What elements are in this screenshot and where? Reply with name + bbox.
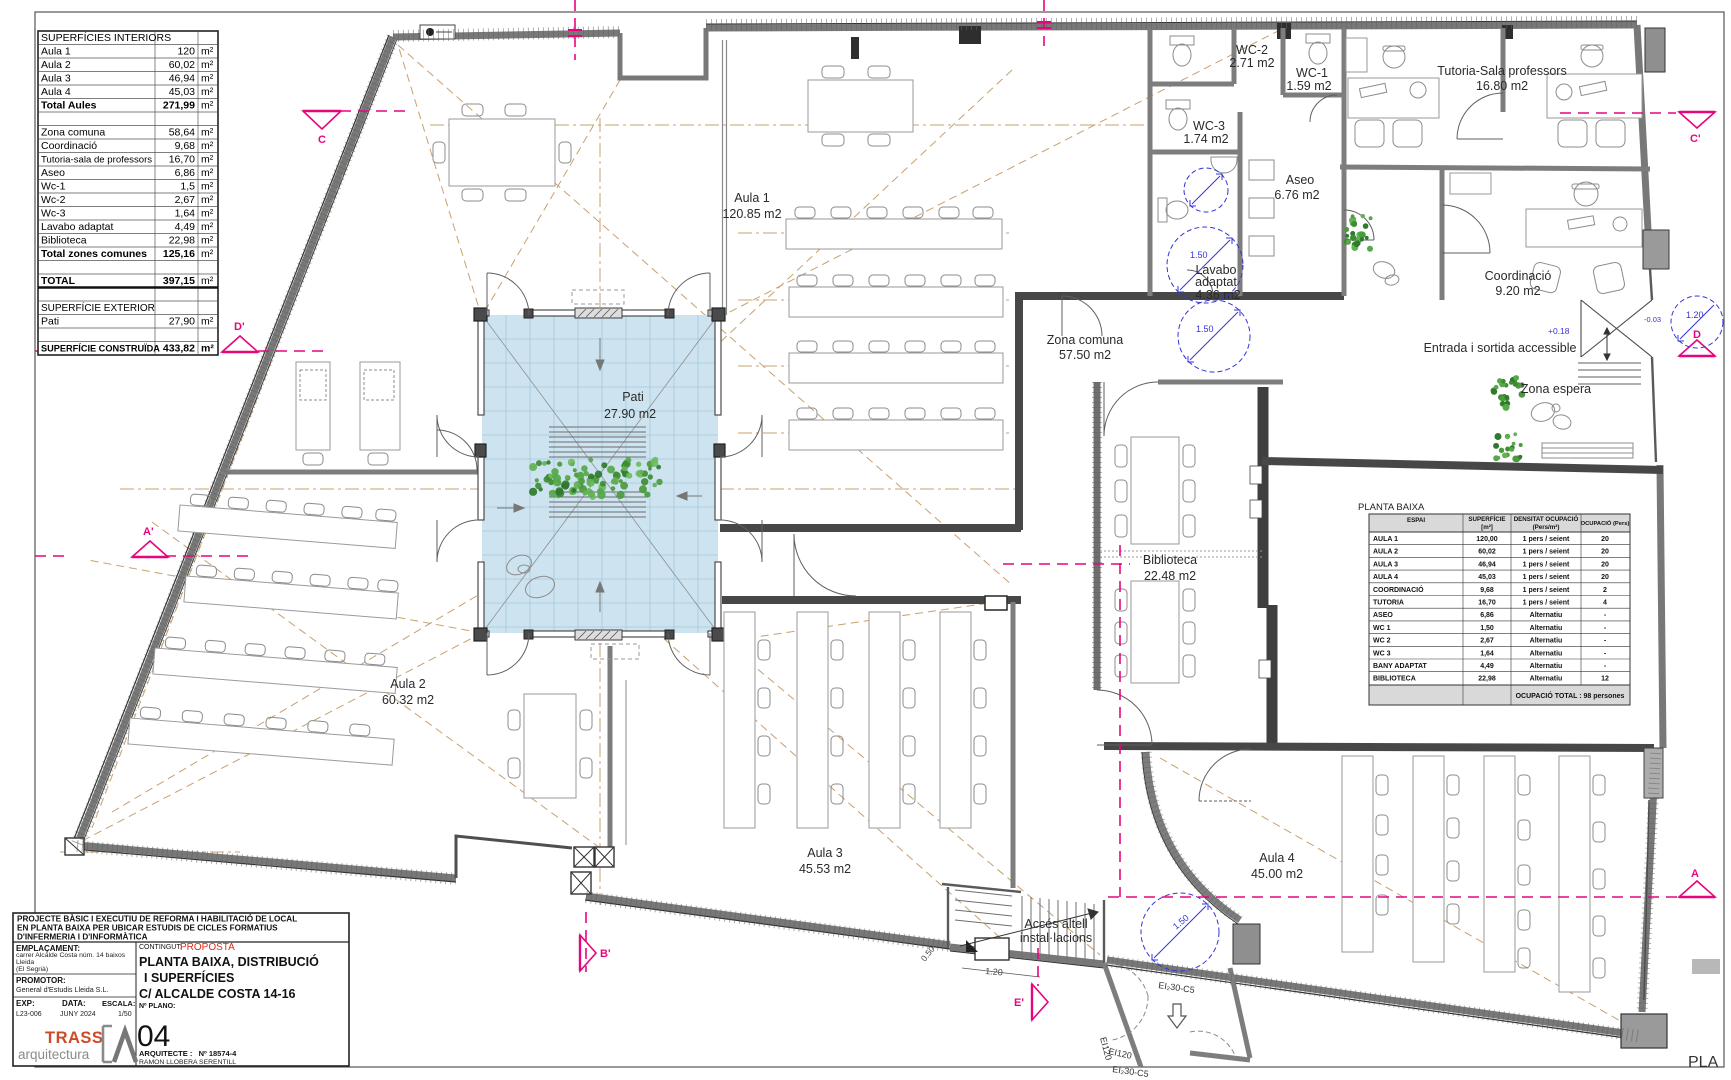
svg-text:E': E'	[1014, 997, 1024, 1009]
svg-text:1 pers / seient: 1 pers / seient	[1523, 574, 1570, 581]
svg-text:1 pers / seient: 1 pers / seient	[1523, 587, 1570, 594]
svg-text:4: 4	[1603, 600, 1607, 607]
svg-text:DENSITAT OCUPACIÓ: DENSITAT OCUPACIÓ	[1514, 515, 1579, 523]
svg-text:m²: m²	[201, 127, 214, 139]
svg-text:SUPERFÍCIE: SUPERFÍCIE	[1468, 515, 1505, 523]
svg-text:60,02: 60,02	[1478, 549, 1496, 556]
svg-text:(Pers/m²): (Pers/m²)	[1533, 524, 1560, 531]
svg-text:AULA 3: AULA 3	[1373, 561, 1398, 568]
svg-text:TOTAL: TOTAL	[41, 275, 76, 287]
svg-text:Nº PLANO:: Nº PLANO:	[139, 1003, 175, 1010]
svg-text:ASEO: ASEO	[1373, 612, 1393, 619]
svg-text:WC-1: WC-1	[1296, 66, 1328, 80]
svg-text:1 pers / seient: 1 pers / seient	[1523, 561, 1570, 568]
svg-text:PROMOTOR:: PROMOTOR:	[16, 976, 66, 985]
svg-text:9.20 m2: 9.20 m2	[1495, 284, 1540, 298]
svg-text:57.50 m2: 57.50 m2	[1059, 348, 1111, 362]
svg-text:6,86: 6,86	[175, 167, 196, 179]
svg-text:1.50: 1.50	[1190, 250, 1208, 260]
svg-text:m²: m²	[201, 194, 214, 206]
svg-text:D': D'	[234, 321, 245, 333]
svg-text:60.32 m2: 60.32 m2	[382, 693, 434, 707]
svg-text:m²: m²	[201, 181, 214, 193]
svg-text:1.20: 1.20	[985, 966, 1003, 977]
svg-text:Aseo: Aseo	[41, 167, 65, 179]
svg-text:BANY ADAPTAT: BANY ADAPTAT	[1373, 663, 1428, 670]
svg-text:60,02: 60,02	[169, 59, 195, 71]
svg-text:WC-2: WC-2	[1236, 43, 1268, 57]
svg-text:m²: m²	[201, 73, 214, 85]
svg-text:C/ ALCALDE COSTA 14-16: C/ ALCALDE COSTA 14-16	[139, 987, 296, 1001]
svg-text:m²: m²	[201, 208, 214, 220]
svg-text:BIBLIOTECA: BIBLIOTECA	[1373, 676, 1416, 683]
svg-text:m²: m²	[201, 86, 214, 98]
svg-text:WC 1: WC 1	[1373, 625, 1391, 632]
svg-text:m²: m²	[201, 343, 214, 355]
svg-text:OCUPACIÓ TOTAL : 98 persones: OCUPACIÓ TOTAL : 98 persones	[1516, 691, 1625, 700]
svg-text:SUPERFÍCIE CONSTRUÏDA: SUPERFÍCIE CONSTRUÏDA	[41, 343, 160, 354]
svg-text:Alternatiu: Alternatiu	[1530, 612, 1563, 619]
svg-text:4,49: 4,49	[1480, 663, 1494, 670]
svg-text:46,94: 46,94	[1478, 561, 1496, 568]
svg-text:16.80 m2: 16.80 m2	[1476, 79, 1528, 93]
svg-text:Aula 1: Aula 1	[41, 46, 71, 58]
svg-text:1/50: 1/50	[118, 1011, 132, 1018]
svg-text:carrer Alcalde Costa núm. 14 b: carrer Alcalde Costa núm. 14 baixos	[16, 952, 126, 959]
svg-text:m²: m²	[201, 46, 214, 58]
svg-text:WC 2: WC 2	[1373, 638, 1391, 645]
svg-text:ARQUITECTE : Nº 18574-4: ARQUITECTE : Nº 18574-4	[139, 1049, 237, 1058]
svg-text:C: C	[318, 134, 326, 146]
svg-text:1.50: 1.50	[1196, 324, 1214, 334]
svg-text:WC-3: WC-3	[1193, 119, 1225, 133]
svg-text:Aula 2: Aula 2	[41, 59, 71, 71]
svg-text:m²: m²	[201, 221, 214, 233]
svg-text:1,64: 1,64	[175, 208, 196, 220]
svg-text:Wc-1: Wc-1	[41, 181, 66, 193]
svg-text:Aula 3: Aula 3	[807, 846, 842, 860]
svg-text:Aula 1: Aula 1	[734, 191, 769, 205]
svg-text:22,98: 22,98	[1478, 676, 1496, 683]
svg-text:Total Aules: Total Aules	[41, 100, 97, 112]
svg-text:m²: m²	[201, 316, 214, 328]
svg-text:A': A'	[143, 526, 154, 538]
svg-text:TRASS: TRASS	[45, 1029, 103, 1047]
svg-text:1,5: 1,5	[180, 181, 195, 193]
svg-text:WC 3: WC 3	[1373, 650, 1391, 657]
svg-text:EXP:: EXP:	[16, 999, 35, 1008]
svg-text:2,67: 2,67	[175, 194, 196, 206]
svg-text:Aula 2: Aula 2	[390, 677, 425, 691]
svg-text:Zona comuna: Zona comuna	[1047, 333, 1123, 347]
svg-text:Aula 3: Aula 3	[41, 73, 71, 85]
svg-text:D: D	[1693, 329, 1701, 341]
svg-text:(El Segrià): (El Segrià)	[16, 966, 48, 973]
svg-text:20: 20	[1601, 574, 1609, 581]
svg-text:ESCALA:: ESCALA:	[102, 999, 135, 1008]
svg-text:COORDINACIÓ: COORDINACIÓ	[1373, 585, 1424, 594]
svg-text:Coordinació: Coordinació	[41, 140, 97, 152]
svg-text:Coordinació: Coordinació	[1485, 269, 1552, 283]
svg-text:Aula 4: Aula 4	[41, 86, 71, 98]
svg-text:A: A	[1691, 868, 1699, 880]
svg-text:m²: m²	[201, 100, 214, 112]
svg-text:16,70: 16,70	[1478, 600, 1496, 607]
svg-text:45.53 m2: 45.53 m2	[799, 862, 851, 876]
svg-text:Total zones comunes: Total zones comunes	[41, 248, 147, 260]
svg-text:20: 20	[1601, 536, 1609, 543]
svg-text:9,68: 9,68	[175, 140, 196, 152]
svg-text:B': B'	[600, 948, 611, 960]
svg-text:arquitectura: arquitectura	[18, 1047, 90, 1062]
svg-text:General d'Estudis Lleida S.L.: General d'Estudis Lleida S.L.	[16, 985, 108, 994]
svg-text:Alternatiu: Alternatiu	[1530, 676, 1563, 683]
svg-text:adaptat: adaptat	[1195, 275, 1237, 289]
svg-text:CONTINGUT:: CONTINGUT:	[139, 944, 182, 951]
svg-text:TUTORIA: TUTORIA	[1373, 600, 1404, 607]
svg-text:22,98: 22,98	[169, 235, 195, 247]
svg-text:Aseo: Aseo	[1286, 173, 1315, 187]
svg-text:Lleida: Lleida	[16, 959, 34, 966]
svg-text:JUNY 2024: JUNY 2024	[60, 1011, 96, 1018]
svg-text:27,90: 27,90	[169, 316, 195, 328]
svg-text:120,00: 120,00	[1476, 536, 1498, 543]
svg-text:AULA 4: AULA 4	[1373, 574, 1398, 581]
svg-text:Tutoria-Sala professors: Tutoria-Sala professors	[1437, 64, 1566, 78]
svg-text:OCUPACIÓ (Pers): OCUPACIÓ (Pers)	[1581, 519, 1630, 527]
svg-text:1.74 m2: 1.74 m2	[1183, 132, 1228, 146]
svg-text:1.20: 1.20	[1686, 310, 1704, 320]
svg-text:Tutoria-sala de professors: Tutoria-sala de professors	[41, 155, 152, 166]
svg-text:PLA: PLA	[1688, 1054, 1719, 1071]
svg-text:6,86: 6,86	[1480, 612, 1494, 619]
svg-text:20: 20	[1601, 549, 1609, 556]
svg-text:397,15: 397,15	[163, 275, 195, 287]
svg-text:120.85 m2: 120.85 m2	[722, 207, 781, 221]
svg-text:AULA 2: AULA 2	[1373, 549, 1398, 556]
svg-text:PROJECTE BÀSIC I EXECUTIU DE R: PROJECTE BÀSIC I EXECUTIU DE REFORMA I H…	[17, 913, 297, 924]
svg-text:9,68: 9,68	[1480, 587, 1494, 594]
svg-text:D'INFERMERIA I D'INFORMÀTICA: D'INFERMERIA I D'INFORMÀTICA	[17, 932, 148, 942]
svg-text:433,82: 433,82	[163, 343, 195, 355]
svg-text:m²: m²	[201, 154, 214, 166]
svg-text:Aula 4: Aula 4	[1259, 851, 1294, 865]
svg-text:271,99: 271,99	[163, 100, 195, 112]
svg-text:DATA:: DATA:	[62, 999, 86, 1008]
svg-text:1.59 m2: 1.59 m2	[1286, 79, 1331, 93]
svg-text:Accés altell: Accés altell	[1024, 917, 1087, 931]
svg-text:Alternatiu: Alternatiu	[1530, 625, 1563, 632]
svg-text:Wc-2: Wc-2	[41, 194, 66, 206]
svg-text:2,67: 2,67	[1480, 638, 1494, 645]
svg-text:20: 20	[1601, 561, 1609, 568]
svg-text:+0.18: +0.18	[1548, 326, 1570, 336]
svg-text:I SUPERFÍCIES: I SUPERFÍCIES	[144, 970, 234, 985]
svg-text:1,64: 1,64	[1480, 650, 1494, 657]
svg-text:Alternatiu: Alternatiu	[1530, 638, 1563, 645]
svg-text:AULA 1: AULA 1	[1373, 536, 1398, 543]
svg-text:-0.03: -0.03	[1644, 315, 1661, 324]
svg-text:m²: m²	[201, 248, 214, 260]
svg-text:Entrada i sortida accessible: Entrada i sortida accessible	[1424, 341, 1577, 355]
svg-text:Wc-3: Wc-3	[41, 208, 66, 220]
svg-text:4,49: 4,49	[175, 221, 196, 233]
svg-text:PLANTA BAIXA, DISTRIBUCIÓ: PLANTA BAIXA, DISTRIBUCIÓ	[139, 954, 319, 969]
svg-text:12: 12	[1601, 676, 1609, 683]
svg-text:Alternatiu: Alternatiu	[1530, 650, 1563, 657]
svg-text:m²: m²	[201, 59, 214, 71]
svg-text:m²: m²	[201, 235, 214, 247]
svg-text:120: 120	[177, 46, 195, 58]
svg-text:45.00 m2: 45.00 m2	[1251, 867, 1303, 881]
svg-text:Biblioteca: Biblioteca	[1143, 553, 1197, 567]
svg-text:22.48 m2: 22.48 m2	[1144, 569, 1196, 583]
svg-text:1 pers / seient: 1 pers / seient	[1523, 600, 1570, 607]
svg-text:Alternatiu: Alternatiu	[1530, 663, 1563, 670]
svg-text:C': C'	[1690, 133, 1701, 145]
svg-text:1 pers / seient: 1 pers / seient	[1523, 549, 1570, 556]
svg-text:6.76 m2: 6.76 m2	[1274, 188, 1319, 202]
svg-text:Pati: Pati	[622, 390, 644, 404]
svg-text:58,64: 58,64	[169, 127, 195, 139]
svg-text:Zona espera: Zona espera	[1521, 382, 1591, 396]
svg-text:RAMON LLOBERA SERENTILL: RAMON LLOBERA SERENTILL	[139, 1059, 236, 1066]
svg-text:SUPERFÍCIE EXTERIOR: SUPERFÍCIE EXTERIOR	[41, 301, 155, 314]
svg-text:1 pers / seient: 1 pers / seient	[1523, 536, 1570, 543]
svg-text:27.90 m2: 27.90 m2	[604, 407, 656, 421]
svg-text:L23-006: L23-006	[16, 1011, 42, 1018]
svg-text:ESPAI: ESPAI	[1407, 517, 1425, 524]
svg-text:16,70: 16,70	[169, 154, 195, 166]
svg-text:46,94: 46,94	[169, 73, 195, 85]
svg-text:SUPERFÍCIES INTERIORS: SUPERFÍCIES INTERIORS	[41, 31, 171, 44]
svg-text:125,16: 125,16	[163, 248, 195, 260]
svg-text:instal·lacions: instal·lacions	[1020, 931, 1092, 945]
svg-text:PROPOSTA: PROPOSTA	[180, 942, 235, 953]
svg-text:PLANTA BAIXA: PLANTA BAIXA	[1358, 502, 1425, 513]
svg-text:[m²]: [m²]	[1481, 524, 1493, 531]
svg-text:2: 2	[1603, 587, 1607, 594]
svg-text:Pati: Pati	[41, 316, 59, 328]
svg-text:Biblioteca: Biblioteca	[41, 235, 87, 247]
svg-text:m²: m²	[201, 167, 214, 179]
svg-text:1,50: 1,50	[1480, 625, 1494, 632]
svg-text:2.71 m2: 2.71 m2	[1229, 56, 1274, 70]
svg-text:45,03: 45,03	[169, 86, 195, 98]
svg-text:45,03: 45,03	[1478, 574, 1496, 581]
svg-text:Lavabo adaptat: Lavabo adaptat	[41, 221, 113, 233]
svg-text:Zona comuna: Zona comuna	[41, 127, 105, 139]
svg-text:EN PLANTA BAIXA PER UBICAR EST: EN PLANTA BAIXA PER UBICAR ESTUDIS DE CI…	[17, 924, 278, 933]
svg-text:m²: m²	[201, 140, 214, 152]
svg-text:m²: m²	[201, 275, 214, 287]
